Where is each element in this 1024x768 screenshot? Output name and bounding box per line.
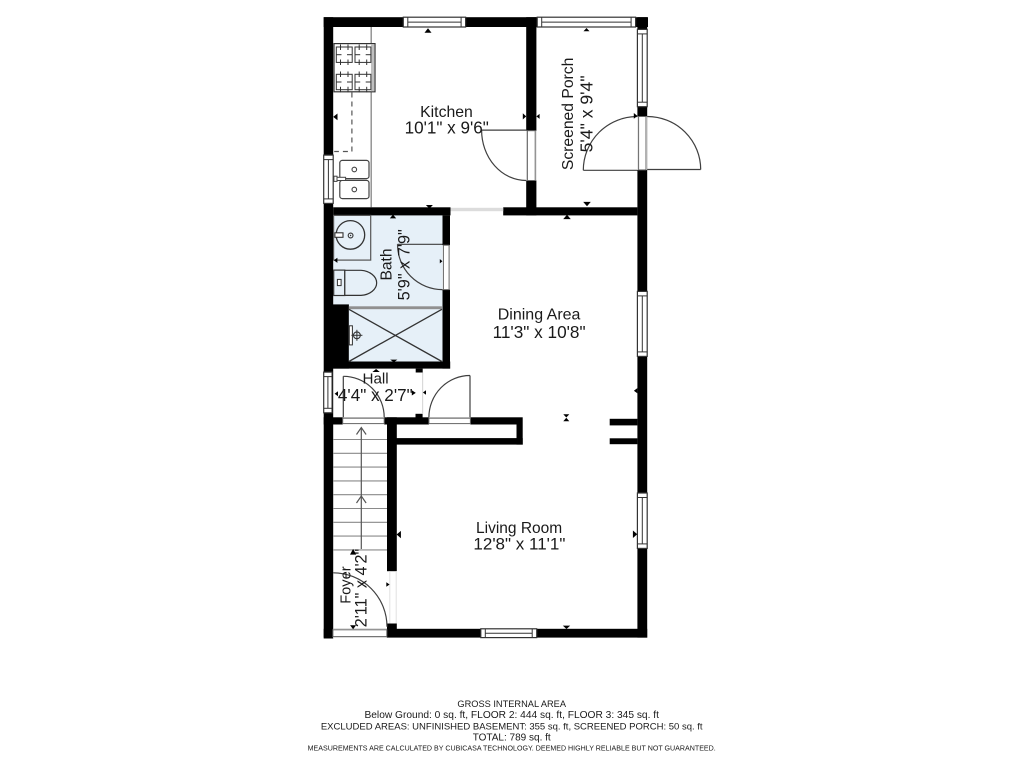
svg-text:MEASUREMENTS ARE CALCULATED BY: MEASUREMENTS ARE CALCULATED BY CUBICASA … — [308, 744, 716, 752]
svg-text:Bath: Bath — [379, 248, 396, 280]
svg-text:5'9" x 7'9": 5'9" x 7'9" — [396, 229, 414, 300]
svg-text:Below Ground: 0 sq. ft, FLOOR: Below Ground: 0 sq. ft, FLOOR 2: 444 sq.… — [364, 710, 659, 721]
svg-text:Hall: Hall — [363, 371, 389, 388]
svg-text:TOTAL: 789 sq. ft: TOTAL: 789 sq. ft — [473, 733, 551, 744]
svg-text:10'1" x 9'6": 10'1" x 9'6" — [405, 118, 489, 137]
svg-text:5'4" x 9'4": 5'4" x 9'4" — [576, 75, 596, 152]
svg-text:4'4" x 2'7": 4'4" x 2'7" — [338, 386, 413, 405]
svg-text:11'3" x 10'8": 11'3" x 10'8" — [493, 322, 586, 342]
svg-text:2'11" x 4'2": 2'11" x 4'2" — [353, 548, 371, 627]
svg-text:Screened Porch: Screened Porch — [560, 58, 577, 170]
svg-text:12'8" x 11'1": 12'8" x 11'1" — [473, 534, 565, 553]
svg-text:EXCLUDED AREAS: UNFINISHED BAS: EXCLUDED AREAS: UNFINISHED BASEMENT: 355… — [321, 722, 703, 733]
svg-text:GROSS INTERNAL AREA: GROSS INTERNAL AREA — [457, 699, 566, 709]
